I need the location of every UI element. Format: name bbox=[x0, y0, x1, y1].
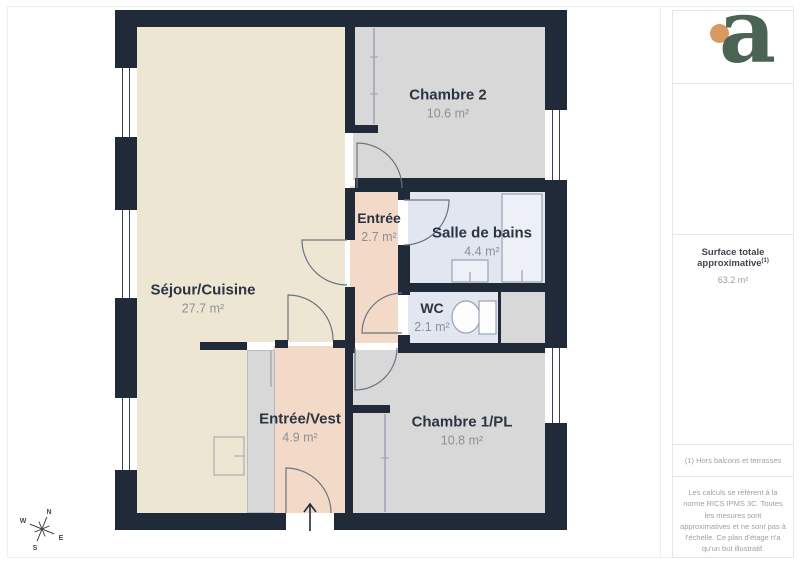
wall bbox=[115, 10, 137, 68]
room-label-entree: Entrée 2.7 m² bbox=[357, 209, 401, 245]
wall bbox=[115, 298, 137, 398]
wall bbox=[200, 342, 247, 350]
surface-total-block: Surface totale approximative(1) 63.2 m² bbox=[673, 247, 793, 285]
wall bbox=[498, 292, 501, 343]
floorplan-page: N W E S Séjour/Cuisine 27.7 m² Chambre 2… bbox=[0, 0, 800, 564]
wall bbox=[345, 353, 353, 513]
wall bbox=[115, 10, 567, 27]
disclaimer-text: Les calculs se réfèrent à la norme RICS … bbox=[673, 476, 793, 555]
wall bbox=[345, 27, 355, 133]
room-sejour-cuisine bbox=[137, 342, 247, 513]
wall bbox=[398, 343, 545, 353]
disclaimer-block: Les calculs se réfèrent à la norme RICS … bbox=[673, 476, 793, 564]
footnote: (1) Hors balcons et terrasses bbox=[673, 444, 793, 476]
room-label-salle-de-bains: Salle de bains 4.4 m² bbox=[432, 222, 532, 259]
room-label-entree-vest: Entrée/Vest 4.9 m² bbox=[259, 408, 341, 445]
wall bbox=[355, 178, 545, 192]
panel-separator bbox=[673, 83, 793, 84]
wall bbox=[275, 340, 288, 348]
panel-divider bbox=[660, 6, 661, 557]
surface-total-value: 63.2 m² bbox=[673, 275, 793, 285]
wall bbox=[353, 405, 390, 413]
wall bbox=[410, 283, 545, 292]
panel-separator bbox=[673, 234, 793, 235]
info-panel: a Surface totale approximative(1) 63.2 m… bbox=[672, 10, 794, 558]
wall bbox=[345, 188, 355, 240]
wall bbox=[115, 470, 137, 530]
room-label-chambre2: Chambre 2 10.6 m² bbox=[409, 84, 487, 121]
room-label-chambre1: Chambre 1/PL 10.8 m² bbox=[412, 411, 513, 448]
closet-wc-side bbox=[501, 292, 545, 343]
brand-logo: a bbox=[673, 11, 793, 83]
wall bbox=[545, 180, 567, 348]
room-label-wc: WC 2.1 m² bbox=[414, 299, 449, 335]
wall bbox=[334, 513, 567, 530]
wall bbox=[398, 192, 410, 200]
wall bbox=[345, 125, 378, 133]
wall bbox=[115, 513, 286, 530]
wall bbox=[115, 137, 137, 210]
wall bbox=[345, 287, 355, 353]
wall bbox=[333, 340, 345, 348]
wall bbox=[398, 245, 410, 295]
wall bbox=[545, 10, 567, 110]
wall bbox=[545, 423, 567, 530]
logo-letter: a bbox=[719, 11, 776, 75]
surface-total-label: Surface totale approximative(1) bbox=[673, 247, 793, 269]
room-label-sejour: Séjour/Cuisine 27.7 m² bbox=[150, 279, 255, 316]
